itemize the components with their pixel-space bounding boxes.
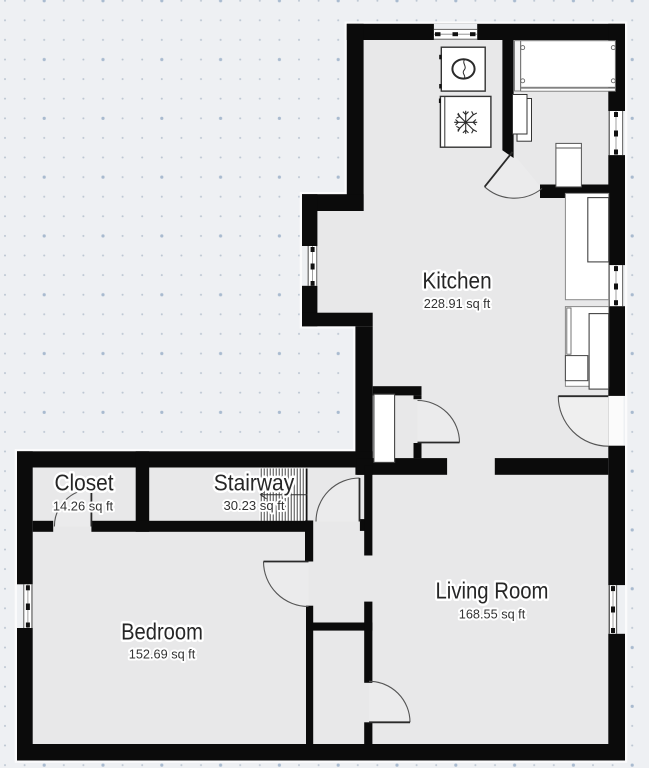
svg-text:30.23 sq ft: 30.23 sq ft xyxy=(224,498,285,513)
svg-text:Bedroom: Bedroom xyxy=(121,619,203,645)
svg-text:Living Room: Living Room xyxy=(436,578,549,604)
svg-text:Kitchen: Kitchen xyxy=(422,268,491,294)
svg-text:228.91 sq ft: 228.91 sq ft xyxy=(424,296,491,311)
svg-text:14.26 sq ft: 14.26 sq ft xyxy=(53,499,114,514)
svg-text:152.69 sq ft: 152.69 sq ft xyxy=(129,647,196,662)
svg-text:Closet: Closet xyxy=(54,470,114,496)
svg-text:168.55 sq ft: 168.55 sq ft xyxy=(459,607,526,622)
svg-text:Stairway: Stairway xyxy=(214,470,295,496)
